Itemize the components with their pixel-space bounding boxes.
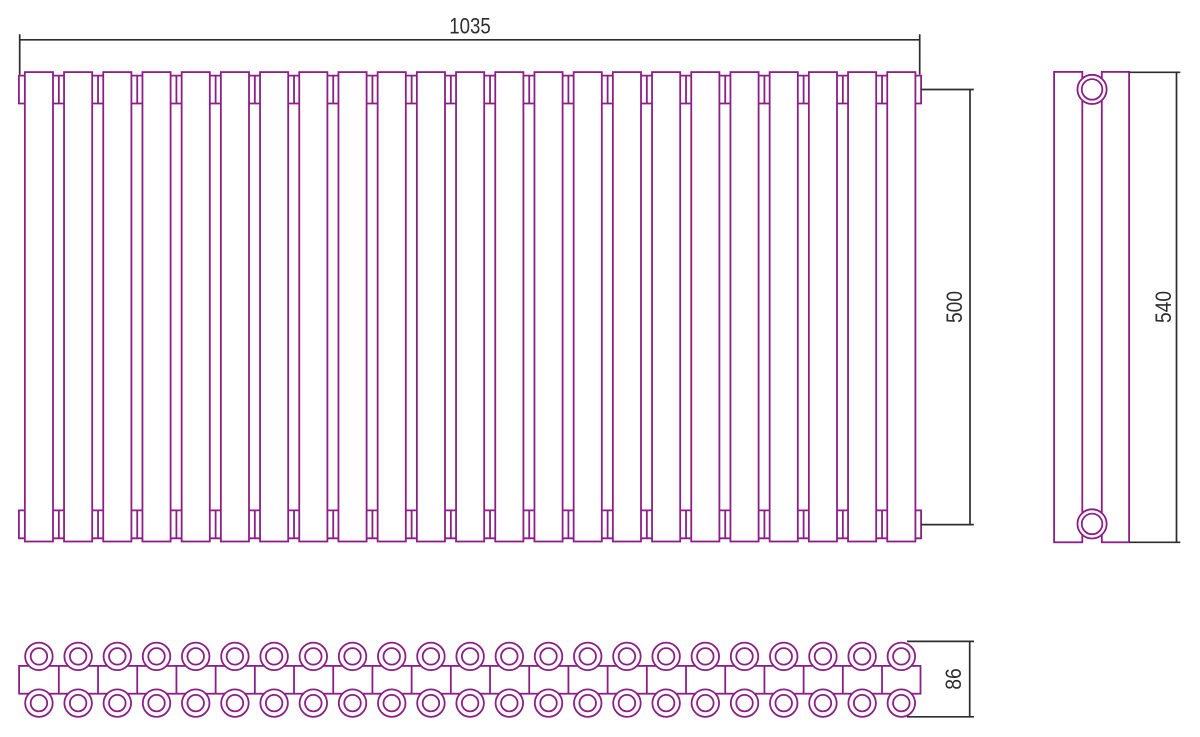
- svg-text:540: 540: [1151, 291, 1176, 323]
- svg-text:1035: 1035: [449, 14, 491, 39]
- svg-text:500: 500: [942, 291, 967, 323]
- svg-text:86: 86: [941, 668, 966, 690]
